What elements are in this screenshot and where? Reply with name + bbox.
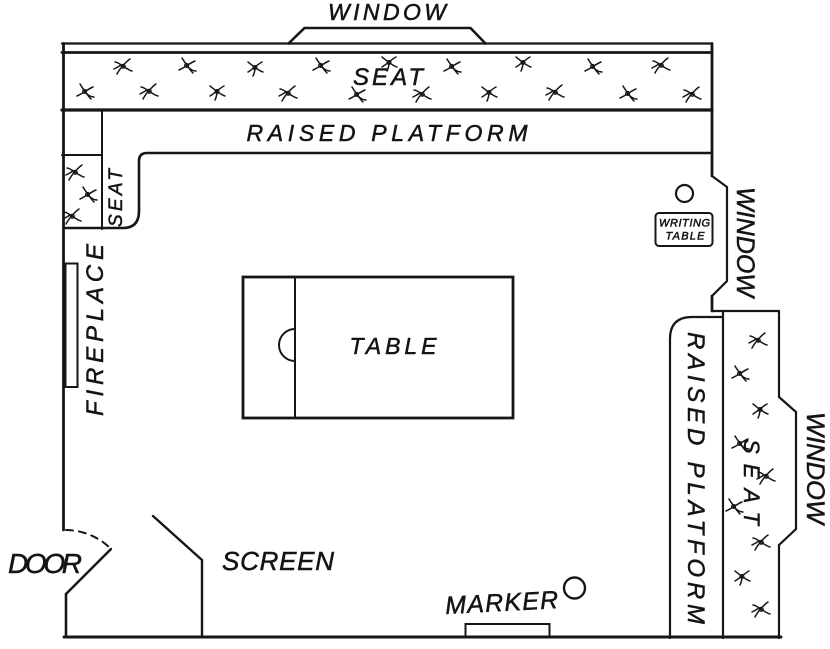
svg-text:WINDOW: WINDOW xyxy=(328,0,448,25)
svg-text:TABLE: TABLE xyxy=(666,231,706,243)
svg-text:SCREEN: SCREEN xyxy=(222,546,334,576)
svg-text:WINDOW: WINDOW xyxy=(731,187,759,299)
svg-text:RAISED PLATFORM: RAISED PLATFORM xyxy=(682,332,709,624)
svg-text:WINDOW: WINDOW xyxy=(801,412,829,526)
svg-text:RAISED PLATFORM: RAISED PLATFORM xyxy=(247,120,529,146)
svg-text:DOOR: DOOR xyxy=(8,548,82,579)
svg-text:SEAT: SEAT xyxy=(106,168,127,227)
svg-text:TABLE: TABLE xyxy=(350,333,438,359)
svg-text:FIREPLACE: FIREPLACE xyxy=(82,243,109,416)
svg-text:MARKER: MARKER xyxy=(444,586,558,620)
svg-text:WRITING: WRITING xyxy=(659,218,710,230)
svg-text:SEAT: SEAT xyxy=(353,64,425,91)
